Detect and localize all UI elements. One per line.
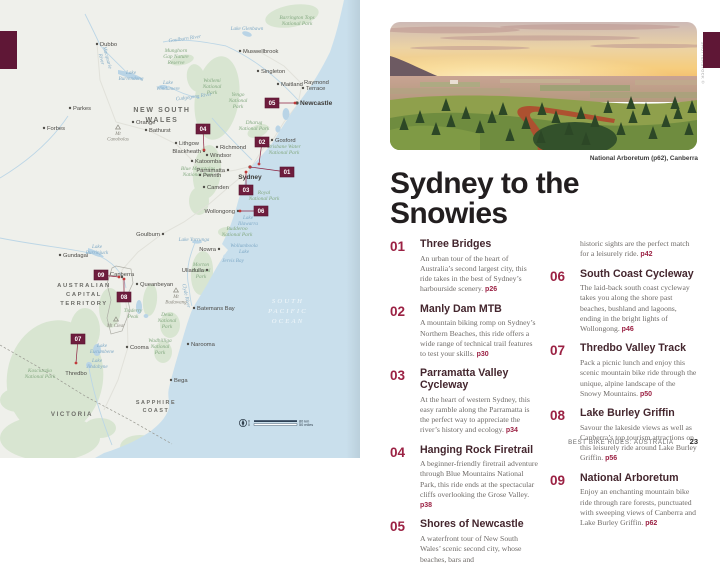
town-dot <box>257 70 259 72</box>
park-label: Barrington TopsNational Park <box>279 15 314 27</box>
book-spread: Barrington TopsNational ParkMunghornGap … <box>0 0 720 458</box>
marker-target-dot <box>118 276 121 279</box>
town-dot <box>170 379 172 381</box>
ride-description: A waterfront tour of New South Wales’ sc… <box>420 534 538 565</box>
region-label: VICTORIA <box>51 411 93 418</box>
marker-target-dot <box>75 362 78 365</box>
ride-map-marker-number: 02 <box>259 140 266 146</box>
town-label: Dubbo <box>100 42 117 48</box>
region-label: SOUTHPACIFICOCEAN <box>267 298 308 325</box>
ride-description: A beginner-friendly firetrail adventure … <box>420 459 538 510</box>
ride-description: At the heart of western Sydney, this eas… <box>420 395 538 436</box>
ride-item: 07Thredbo Valley TrackPack a picnic lunc… <box>550 343 698 399</box>
town-dot <box>132 121 134 123</box>
town-label: Muswellbrook <box>243 49 279 55</box>
ride-description: The laid-back south coast cycleway takes… <box>580 283 698 334</box>
ride-map-marker-number: 04 <box>200 127 207 133</box>
ride-map-marker-number: 08 <box>121 295 128 301</box>
chapter-title: Sydney to the Snowies <box>390 169 698 229</box>
marker-target-dot <box>258 163 261 166</box>
ride-item: 05Shores of NewcastleA waterfront tour o… <box>390 519 538 564</box>
ride-page-ref: p34 <box>506 427 518 434</box>
ride-item: 03Parramatta Valley CyclewayAt the heart… <box>390 368 538 435</box>
marker-target-dot <box>203 149 206 152</box>
town-label: Terrace <box>306 86 325 92</box>
ride-page-ref: p56 <box>605 455 617 462</box>
town-dot <box>206 154 208 156</box>
park-label: KosciuszkoNational Park <box>24 368 56 380</box>
town-label: Lithgow <box>179 141 200 147</box>
town-label: Parramatta <box>196 168 225 174</box>
town-label: Parkes <box>73 106 91 112</box>
ride-number: 02 <box>390 304 420 360</box>
town-label: Richmond <box>220 145 246 151</box>
ride-page-ref: p26 <box>485 286 497 293</box>
town-label: Blackheath <box>172 149 201 155</box>
chapter-edge-tab-right <box>703 32 720 68</box>
ride-title: South Coast Cycleway <box>580 269 698 281</box>
town-label: Ulladulla <box>182 268 205 274</box>
town-label: Gundagai <box>63 253 88 259</box>
water-label: Jervis Bay <box>222 258 244 264</box>
town-dot <box>187 343 189 345</box>
ride-map-marker-number: 06 <box>258 209 265 215</box>
ride-item: 08Lake Burley GriffinSavour the lakeside… <box>550 408 698 464</box>
town-label: Gosford <box>275 138 296 144</box>
town-label: Goulburn <box>136 232 160 238</box>
ride-description: A mountain biking romp on Sydney’s North… <box>420 318 538 359</box>
ride-map-marker-number: 01 <box>284 170 291 176</box>
ride-number: 08 <box>550 408 580 464</box>
ride-page-ref: p38 <box>420 502 432 509</box>
ride-list-column-1: 01Three BridgesAn urban tour of the hear… <box>390 239 538 574</box>
ride-page-ref: p30 <box>477 351 489 358</box>
town-dot <box>239 50 241 52</box>
town-label: Thredbo <box>65 371 87 377</box>
town-label: Cooma <box>130 345 149 351</box>
town-dot <box>203 186 205 188</box>
town-label: Narooma <box>191 342 216 348</box>
town-dot <box>271 139 273 141</box>
town-label: Maitland <box>281 82 303 88</box>
town-dot <box>206 269 208 271</box>
town-dot <box>69 107 71 109</box>
ride-page-ref: p42 <box>640 251 652 258</box>
town-label: Canberra <box>110 272 135 278</box>
content-page: SHUTTERSTOCK © National Arboretum (p62),… <box>360 0 720 458</box>
marker-target-dot <box>249 166 252 169</box>
town-dot <box>175 142 177 144</box>
ride-item: 09National ArboretumEnjoy an enchanting … <box>550 473 698 529</box>
ride-description: An urban tour of the heart of Australia’… <box>420 254 538 295</box>
ride-number: 04 <box>390 445 420 511</box>
ride-title: Three Bridges <box>420 239 538 251</box>
town-dot <box>126 346 128 348</box>
marker-target-dot <box>245 171 248 174</box>
svg-text:50 miles: 50 miles <box>299 423 313 427</box>
ride-page-ref: p46 <box>622 326 634 333</box>
town-label: Sydney <box>238 174 262 181</box>
town-label: Nowra <box>199 247 217 253</box>
ride-title: National Arboretum <box>580 473 698 485</box>
town-dot <box>227 169 229 171</box>
ride-item: 04Hanging Rock FiretrailA beginner-frien… <box>390 445 538 511</box>
marker-target-dot <box>123 278 126 281</box>
ride-number: 06 <box>550 269 580 335</box>
town-label: Katoomba <box>195 159 222 165</box>
town-label: Newcastle <box>300 100 333 107</box>
page-footer: BEST BIKE RIDES: AUSTRALIA23 <box>568 437 698 446</box>
town-dot <box>302 87 304 89</box>
town-label: Queanbeyan <box>140 282 173 288</box>
town-dot <box>216 146 218 148</box>
ride-number: 07 <box>550 343 580 399</box>
ride-title: Thredbo Valley Track <box>580 343 698 355</box>
mountain-label: Mt Clear <box>106 324 125 329</box>
town-label: Wollongong <box>204 209 235 215</box>
chapter-edge-tab-left <box>0 31 17 69</box>
ride-list-column-2: historic sights are the perfect match fo… <box>550 239 698 574</box>
town-label: Camden <box>207 185 229 191</box>
photo-caption: National Arboretum (p62), Canberra <box>390 155 698 162</box>
town-dot <box>199 174 201 176</box>
town-dot <box>162 233 164 235</box>
svg-text:0: 0 <box>248 423 250 427</box>
footer-book-title: BEST BIKE RIDES: AUSTRALIA <box>568 439 674 446</box>
town-dot <box>191 160 193 162</box>
town-dot <box>218 248 220 250</box>
town-dot <box>136 283 138 285</box>
town-dot <box>96 43 98 45</box>
ride-title: Hanging Rock Firetrail <box>420 445 538 457</box>
ride-description-continued: historic sights are the perfect match fo… <box>580 239 698 260</box>
ride-map-marker-number: 07 <box>75 337 82 343</box>
ride-title: Shores of Newcastle <box>420 519 538 531</box>
ride-number: 09 <box>550 473 580 529</box>
town-dot <box>277 83 279 85</box>
ride-map-marker-number: 05 <box>269 101 276 107</box>
ride-title: Manly Dam MTB <box>420 304 538 316</box>
ride-item: 01Three BridgesAn urban tour of the hear… <box>390 239 538 295</box>
ride-description: Enjoy an enchanting mountain bike ride t… <box>580 487 698 528</box>
ride-number: 03 <box>390 368 420 435</box>
marker-target-dot <box>294 102 297 105</box>
ride-page-ref: p62 <box>645 520 657 527</box>
town-label: Bega <box>174 378 188 384</box>
ride-page-ref: p50 <box>640 391 652 398</box>
photo-wrap: SHUTTERSTOCK © <box>390 22 697 150</box>
ride-title: Parramatta Valley Cycleway <box>420 368 538 391</box>
ride-description: Pack a picnic lunch and enjoy this sceni… <box>580 358 698 399</box>
town-label: Batemans Bay <box>197 306 235 312</box>
ride-number: 05 <box>390 519 420 564</box>
arboretum-photo <box>390 22 697 150</box>
town-dot <box>59 254 61 256</box>
town-label: Singleton <box>261 69 285 75</box>
footer-page-number: 23 <box>690 437 698 446</box>
town-dot <box>43 127 45 129</box>
water-label: Lake Yarrunga <box>178 237 210 243</box>
ride-map-marker-number: 03 <box>243 188 250 194</box>
map-page: Barrington TopsNational ParkMunghornGap … <box>0 0 360 458</box>
nsw-map: Barrington TopsNational ParkMunghornGap … <box>0 0 360 458</box>
park-label: Brisbane WaterNational Park <box>267 144 301 156</box>
water-label: Lake Glenbawn <box>230 26 264 32</box>
town-label: Forbes <box>47 126 65 132</box>
town-dot <box>193 307 195 309</box>
town-label: Bathurst <box>149 128 171 134</box>
town-label: Orange <box>136 120 155 126</box>
ride-title: Lake Burley Griffin <box>580 408 698 420</box>
ride-item: 06South Coast CyclewayThe laid-back sout… <box>550 269 698 335</box>
ride-item: 02Manly Dam MTBA mountain biking romp on… <box>390 304 538 360</box>
town-dot <box>145 129 147 131</box>
ride-list: 01Three BridgesAn urban tour of the hear… <box>390 239 698 574</box>
ride-map-marker-number: 09 <box>98 273 105 279</box>
marker-target-dot <box>239 210 242 213</box>
ride-number: 01 <box>390 239 420 295</box>
